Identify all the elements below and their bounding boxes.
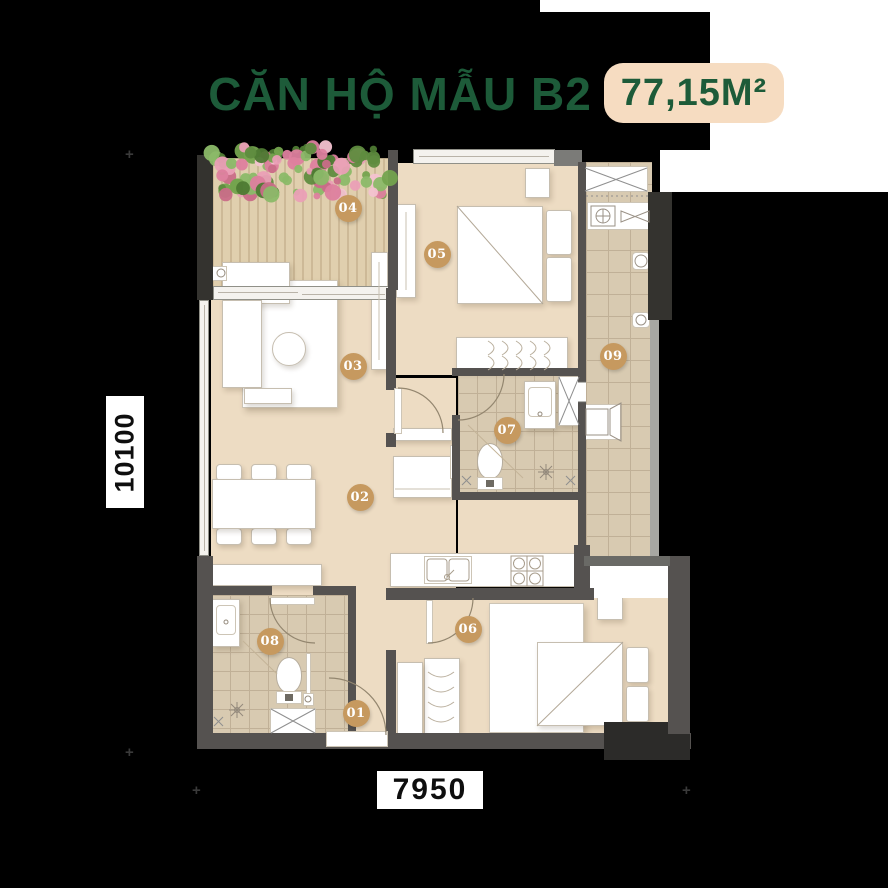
dimension-tick: + — [682, 782, 691, 799]
dimension-tick: + — [125, 146, 134, 163]
room-marker-05: 05 — [424, 241, 451, 268]
room-marker-09: 09 — [600, 343, 627, 370]
room-marker-04: 04 — [335, 195, 362, 222]
room-marker-02: 02 — [347, 484, 374, 511]
dimension-label-horizontal: 7950 — [377, 771, 483, 809]
room-marker-08: 08 — [257, 628, 284, 655]
room-marker-06: 06 — [455, 616, 482, 643]
room-marker-01: 01 — [343, 700, 370, 727]
dimension-tick: + — [192, 782, 201, 799]
room-marker-03: 03 — [340, 353, 367, 380]
dimension-label-vertical: 10100 — [106, 396, 144, 508]
dimension-tick: + — [125, 744, 134, 761]
floorplan-page: CĂN HỘ MẪU B2 77,15M² — [0, 0, 888, 888]
room-marker-07: 07 — [494, 417, 521, 444]
